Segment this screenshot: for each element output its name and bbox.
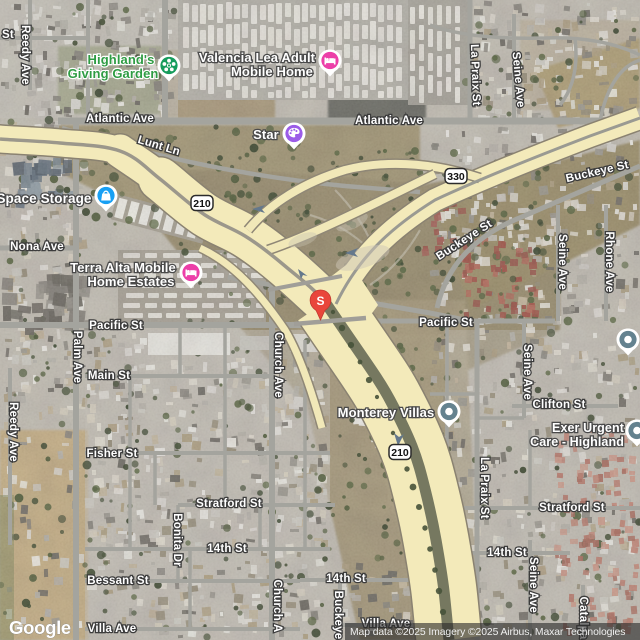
svg-text:La Praix St: La Praix St <box>468 44 482 106</box>
svg-text:Terra Alta Mobile: Terra Alta Mobile <box>70 260 176 275</box>
svg-text:Map data ©2025 Imagery ©2025 A: Map data ©2025 Imagery ©2025 Airbus, Max… <box>350 627 625 638</box>
svg-text:Bessant St: Bessant St <box>87 575 148 587</box>
svg-text:Reedy Ave: Reedy Ave <box>19 25 31 85</box>
svg-text:Monterey Villas: Monterey Villas <box>338 405 435 420</box>
svg-text:Atlantic Ave: Atlantic Ave <box>355 115 423 127</box>
svg-text:210: 210 <box>193 198 211 210</box>
svg-text:Villa Ave: Villa Ave <box>88 623 137 635</box>
svg-text:Seine Ave: Seine Ave <box>527 557 539 613</box>
svg-text:14th St: 14th St <box>487 547 527 559</box>
svg-text:330: 330 <box>447 171 465 183</box>
svg-text:S: S <box>316 294 324 308</box>
svg-text:Space Storage: Space Storage <box>0 191 92 206</box>
svg-text:Stratford St: Stratford St <box>539 502 605 514</box>
svg-text:Valencia Lea Adult: Valencia Lea Adult <box>199 50 316 65</box>
svg-text:Palm Ave: Palm Ave <box>71 331 83 384</box>
svg-text:14th St: 14th St <box>326 573 366 585</box>
svg-text:Star: Star <box>253 127 279 142</box>
svg-text:Care - Highland: Care - Highland <box>530 435 624 449</box>
svg-text:Seine Ave: Seine Ave <box>556 234 568 290</box>
svg-text:Mobile Home: Mobile Home <box>231 64 313 79</box>
svg-text:Nona Ave: Nona Ave <box>10 241 64 253</box>
svg-text:Giving Garden: Giving Garden <box>68 66 159 81</box>
svg-text:Home Estates: Home Estates <box>87 274 174 289</box>
svg-text:14th St: 14th St <box>207 543 247 555</box>
svg-text:Highland's: Highland's <box>88 52 155 67</box>
svg-text:Seine Ave: Seine Ave <box>521 344 533 400</box>
svg-text:Stratford St: Stratford St <box>196 498 262 510</box>
svg-text:St: St <box>2 29 14 41</box>
svg-text:Google: Google <box>9 617 71 638</box>
svg-text:Pacific St: Pacific St <box>89 320 143 332</box>
svg-text:Church A: Church A <box>271 580 283 633</box>
svg-text:Clifton St: Clifton St <box>532 399 585 411</box>
svg-text:Pacific St: Pacific St <box>419 317 473 329</box>
svg-text:Rhone Ave: Rhone Ave <box>603 231 615 292</box>
svg-text:210: 210 <box>391 447 409 459</box>
svg-text:Exer Urgent: Exer Urgent <box>552 421 625 435</box>
svg-text:Reedy Ave: Reedy Ave <box>7 402 19 462</box>
svg-text:Buckeye: Buckeye <box>332 591 344 640</box>
svg-text:Fisher St: Fisher St <box>86 448 137 460</box>
svg-text:La Praix St: La Praix St <box>478 457 490 519</box>
svg-text:Atlantic Ave: Atlantic Ave <box>86 113 154 125</box>
svg-text:Main St: Main St <box>88 370 130 382</box>
svg-text:Church Ave: Church Ave <box>272 332 284 398</box>
svg-text:Bonita Dr: Bonita Dr <box>171 513 183 567</box>
